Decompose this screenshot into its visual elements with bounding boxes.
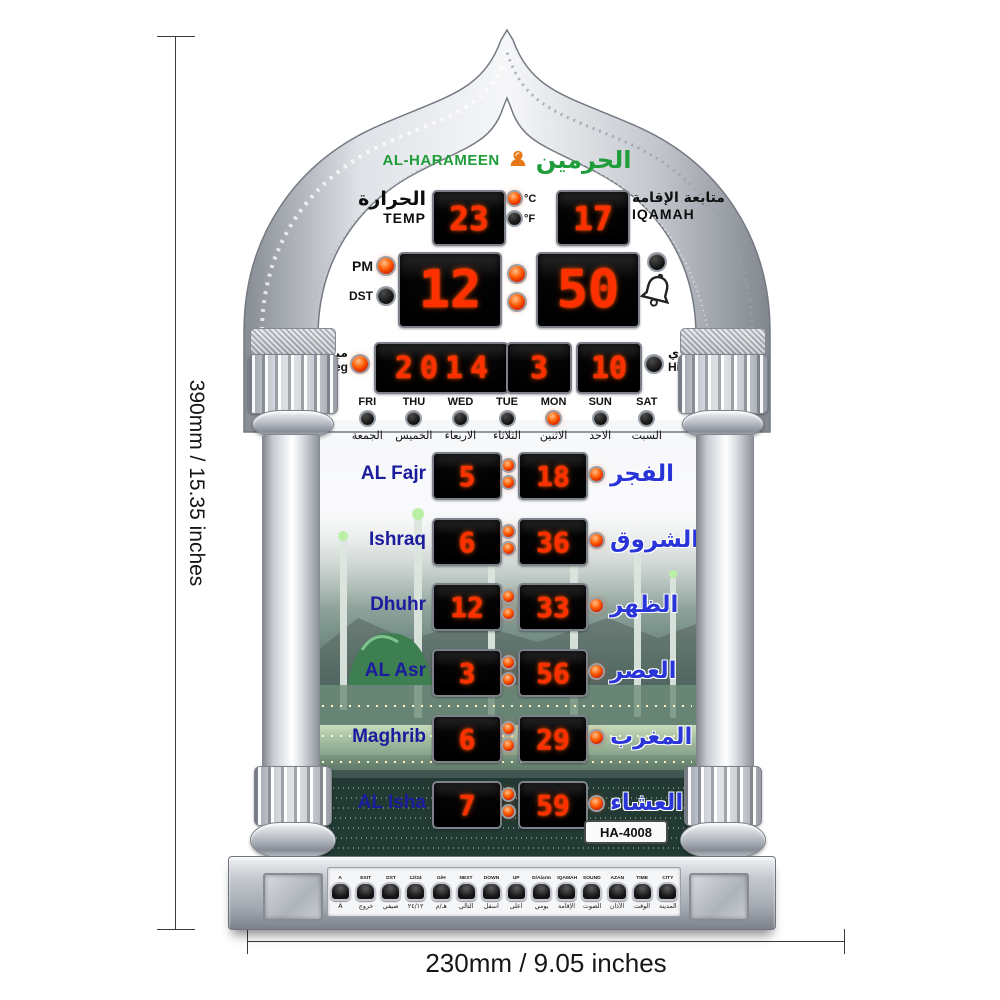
prayer-dhuhr-minute: 33	[518, 583, 588, 631]
prayer-asr-hour: 3	[432, 649, 502, 697]
height-dimension-tick-bottom	[157, 929, 195, 930]
temp-labels: الحرارة TEMP	[322, 188, 426, 226]
prayer-maghrib-minute: 29	[518, 715, 588, 763]
temp-label-en: TEMP	[322, 210, 426, 226]
button-exit-knob[interactable]	[355, 882, 376, 901]
button-time-knob[interactable]	[632, 882, 653, 901]
width-dimension-tick-left	[247, 929, 248, 954]
height-dimension-label: 390mm / 15.35 inches	[184, 363, 208, 603]
button-city-knob[interactable]	[657, 882, 678, 901]
height-dimension-line	[175, 36, 176, 930]
left-pillar-base-flute	[254, 766, 332, 826]
prayer-isha-hour: 7	[432, 781, 502, 829]
prayer-asr-indicator	[590, 665, 603, 678]
day-mon-indicator	[547, 412, 560, 425]
brand-logo-icon	[507, 149, 529, 171]
button-azan[interactable]: AZANالآذان	[605, 868, 630, 916]
control-button-strip: AA EXITخروج DSTصيفي 12/24٢٤/١٢ G/Hهـ/م N…	[327, 867, 681, 917]
hijri-indicator	[646, 356, 662, 372]
left-pillar-capital	[248, 354, 338, 414]
button-exit[interactable]: EXITخروج	[353, 868, 378, 916]
clock-base: AA EXITخروج DSTصيفي 12/24٢٤/١٢ G/Hهـ/م N…	[228, 856, 776, 930]
prayer-maghrib-colon	[498, 715, 518, 759]
prayer-asr-minute: 56	[518, 649, 588, 697]
prayer-maghrib-label-ar: المغرب	[610, 715, 710, 759]
button-dst[interactable]: DSTصيفي	[378, 868, 403, 916]
prayer-isha-indicator	[590, 797, 603, 810]
button-a-knob[interactable]	[330, 882, 351, 901]
button-1224[interactable]: 12/24٢٤/١٢	[403, 868, 428, 916]
day-sun-indicator	[594, 412, 607, 425]
button-iqamah-knob[interactable]	[556, 882, 577, 901]
prayer-dhuhr-label-en: Dhuhr	[318, 583, 426, 627]
prayer-maghrib-label-en: Maghrib	[318, 715, 426, 759]
prayer-dhuhr-label-ar: الظهر	[610, 583, 710, 627]
button-time[interactable]: TIMEالوقت	[630, 868, 655, 916]
clock-minute-display: 50	[536, 252, 640, 328]
button-alarm[interactable]: D/Alarmيومي	[529, 868, 554, 916]
prayer-isha-minute: 59	[518, 781, 588, 829]
celsius-indicator	[508, 192, 521, 205]
day-wed: WEDالاربعاء	[437, 396, 484, 442]
right-pillar-capital	[678, 354, 768, 414]
day-wed-indicator	[454, 412, 467, 425]
pm-indicator	[378, 258, 394, 274]
model-number-tag: HA-4008	[584, 820, 668, 844]
alarm-group	[640, 254, 674, 308]
button-gh-knob[interactable]	[431, 882, 452, 901]
prayer-maghrib-hour: 6	[432, 715, 502, 763]
temp-label-ar: الحرارة	[322, 188, 426, 210]
prayer-dhuhr-indicator	[590, 599, 603, 612]
left-pillar-shaft	[262, 434, 320, 770]
prayer-dhuhr-colon	[498, 583, 518, 627]
button-city[interactable]: CITYالمدينة	[655, 868, 680, 916]
day-fri-indicator	[361, 412, 374, 425]
button-1224-knob[interactable]	[405, 882, 426, 901]
day-sat-indicator	[640, 412, 653, 425]
left-pillar-neck	[250, 328, 336, 356]
dst-indicator	[378, 288, 394, 304]
temp-units: °C °F	[508, 192, 536, 225]
prayer-ishraq-label-ar: الشروق	[610, 518, 710, 562]
prayer-ishraq-colon	[498, 518, 518, 562]
button-next-knob[interactable]	[456, 882, 477, 901]
prayer-ishraq-label-en: Ishraq	[318, 518, 426, 562]
right-pillar-neck	[680, 328, 766, 356]
day-sat: SATالسبت	[623, 396, 670, 442]
weekday-row: FRIالجمعة THUالخميس WEDالاربعاء TUEالثلا…	[344, 396, 670, 442]
clock-hour-display: 12	[398, 252, 502, 328]
year-display: 2014	[374, 342, 509, 394]
iqamah-label-ar: متابعة الإقامة	[632, 190, 750, 206]
button-next[interactable]: NEXTالتالي	[454, 868, 479, 916]
bell-icon	[636, 268, 678, 311]
base-right-pad[interactable]	[689, 873, 749, 921]
day-tue-indicator	[501, 412, 514, 425]
right-pillar-shaft	[696, 434, 754, 770]
width-dimension-label: 230mm / 9.05 inches	[396, 948, 696, 979]
base-left-pad[interactable]	[263, 873, 323, 921]
iqamah-label-en: IQAMAH	[632, 206, 750, 222]
button-up-knob[interactable]	[506, 882, 527, 901]
clock-colon	[504, 252, 530, 324]
fahrenheit-label: °F	[524, 213, 535, 225]
day-sun: SUNالاحد	[577, 396, 624, 442]
button-a[interactable]: AA	[328, 868, 353, 916]
celsius-label: °C	[524, 193, 536, 205]
brand-name-ar: الحرمين	[536, 146, 632, 174]
month-display: 3	[506, 342, 572, 394]
iqamah-display: 17	[556, 190, 630, 246]
prayer-fajr-colon	[498, 452, 518, 496]
pm-dst-indicators: PM DST	[336, 258, 394, 304]
prayer-isha-colon	[498, 781, 518, 825]
alarm-indicator	[649, 254, 665, 270]
prayer-maghrib-indicator	[590, 731, 603, 744]
height-dimension-tick-top	[157, 36, 195, 37]
button-iqamah[interactable]: IQAMAHالإقامة	[554, 868, 579, 916]
prayer-ishraq-indicator	[590, 534, 603, 547]
day-thu-indicator	[407, 412, 420, 425]
prayer-fajr-minute: 18	[518, 452, 588, 500]
button-sound[interactable]: SOUNDالصوت	[579, 868, 604, 916]
product-image: 390mm / 15.35 inches 230mm / 9.05 inches	[0, 0, 1000, 1000]
button-gh[interactable]: G/Hهـ/م	[429, 868, 454, 916]
button-alarm-knob[interactable]	[531, 882, 552, 901]
day-tue: TUEالثلاثاء	[484, 396, 531, 442]
button-dst-knob[interactable]	[380, 882, 401, 901]
fahrenheit-indicator	[508, 212, 521, 225]
day-display: 10	[576, 342, 642, 394]
day-fri: FRIالجمعة	[344, 396, 391, 442]
button-down-knob[interactable]	[481, 882, 502, 901]
brand-logo: AL-HARAMEEN الحرمين	[360, 146, 654, 174]
greg-indicator	[352, 356, 368, 372]
prayer-fajr-label-ar: الفجر	[610, 452, 710, 496]
day-mon: MONالاثنين	[530, 396, 577, 442]
button-down[interactable]: DOWNاسفل	[479, 868, 504, 916]
right-pillar-base-ring	[680, 822, 766, 858]
prayer-fajr-hour: 5	[432, 452, 502, 500]
pm-label: PM	[352, 258, 373, 274]
button-sound-knob[interactable]	[581, 882, 602, 901]
prayer-isha-label-en: AL Isha	[318, 781, 426, 825]
dst-label: DST	[349, 289, 373, 303]
prayer-asr-colon	[498, 649, 518, 693]
prayer-asr-label-ar: العصر	[610, 649, 710, 693]
button-azan-knob[interactable]	[607, 882, 628, 901]
prayer-ishraq-minute: 36	[518, 518, 588, 566]
right-pillar-base-flute	[684, 766, 762, 826]
prayer-ishraq-hour: 6	[432, 518, 502, 566]
iqamah-labels: متابعة الإقامة IQAMAH	[632, 190, 750, 222]
width-dimension-line	[247, 941, 845, 942]
left-pillar-base-ring	[250, 822, 336, 858]
prayer-fajr-indicator	[590, 468, 603, 481]
day-thu: THUالخميس	[391, 396, 438, 442]
brand-name-en: AL-HARAMEEN	[383, 152, 500, 169]
prayer-fajr-label-en: AL Fajr	[318, 452, 426, 496]
width-dimension-tick-right	[844, 929, 845, 954]
prayer-asr-label-en: AL Asr	[318, 649, 426, 693]
temp-display: 23	[432, 190, 506, 246]
prayer-dhuhr-hour: 12	[432, 583, 502, 631]
button-up[interactable]: UPاعلى	[504, 868, 529, 916]
